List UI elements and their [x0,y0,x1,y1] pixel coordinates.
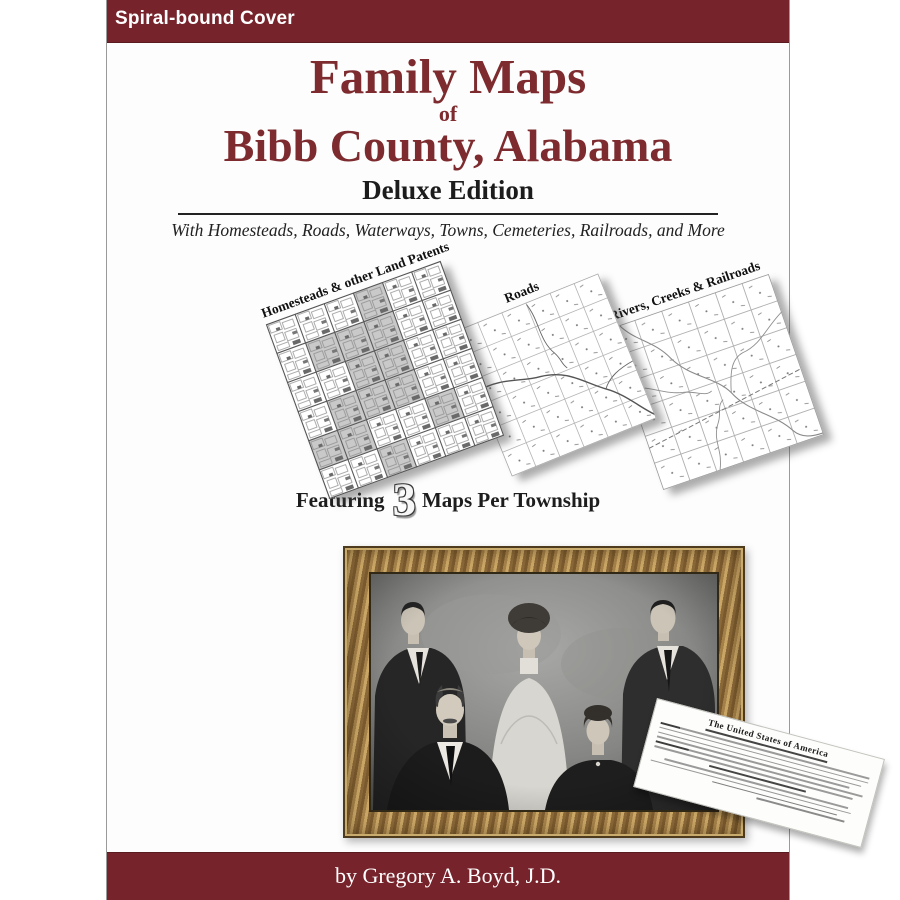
byline: by Gregory A. Boyd, J.D. [335,863,561,888]
divider-rule [178,213,718,215]
book-cover: Spiral-bound Cover Family Maps of Bibb C… [106,0,790,900]
binding-type-label: Spiral-bound Cover [107,0,789,30]
byline-bar: by Gregory A. Boyd, J.D. [107,852,789,900]
featuring-line: Featuring3Maps Per Township [107,478,789,522]
page: Spiral-bound Cover Family Maps of Bibb C… [0,0,900,900]
featuring-number: 3 [392,474,416,526]
binding-type-bar: Spiral-bound Cover [107,0,789,43]
title-line-1: Family Maps [107,52,789,101]
tagline: With Homesteads, Roads, Waterways, Towns… [107,220,789,241]
title-block: Family Maps of Bibb County, Alabama Delu… [107,52,789,241]
title-line-2: Bibb County, Alabama [107,123,789,169]
map-thumbnail-homesteads: Homesteads & other Land Patents [266,261,504,499]
featuring-suffix: Maps Per Township [422,488,600,512]
edition-label: Deluxe Edition [107,175,789,206]
